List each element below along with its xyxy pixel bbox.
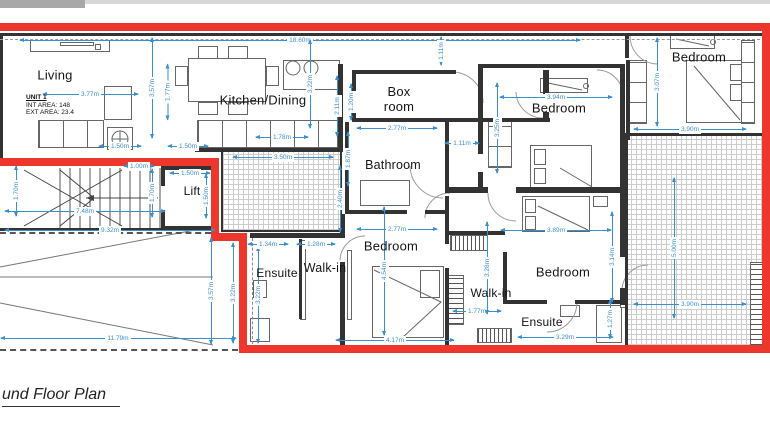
dimension-label: 1.77m [453,306,501,316]
room-label: Living [37,68,72,83]
wall [345,210,407,214]
dimension-label: 3.50m [233,152,333,162]
plan-title: und Floor Plan [2,386,120,407]
dimension-label: 3.28m [482,222,492,314]
wall [625,133,628,345]
unit-info-block: UNIT 1 INT AREA: 148 EXT AREA: 23.4 [26,94,74,117]
unit-outline-mid-horizontal [0,158,219,166]
dimension-label: 3.14m [607,212,617,302]
dimension-label: 1.77m [162,65,172,120]
wall [543,70,549,94]
dimension-label: 3.90m [634,299,746,309]
wall [445,214,449,244]
room-label: Box room [384,84,414,114]
dimension-label: 1.50m [99,141,141,151]
wall [448,231,505,235]
unit-outline-top [0,23,770,31]
unit-int-area: INT AREA: 148 [26,102,74,110]
floorplan-canvas: 18.60m1.11m3.57m1.77m3.77m1.50m1.50m3.22… [0,0,770,430]
dimension-label: 3.22m [305,40,315,128]
dimension-label: 2.11m [332,76,342,136]
dimension-label: 1.50m [168,141,208,151]
dimension-label: 3.57m [147,38,157,138]
wall [425,210,447,214]
wall [352,70,456,74]
room-label: Ensuite [256,266,297,280]
wall [478,64,625,68]
dimension-label: 4.54m [379,207,389,335]
dimension-label: 1.11m [445,138,479,148]
room-label: Ensuite [521,315,562,329]
room-label: Bedroom [672,50,726,65]
dimension-label: 3.90m [634,124,746,134]
dimension-label: 1.20m [346,84,356,120]
unit-outline-left-lower [239,233,247,353]
unit-ext-area: EXT AREA: 23.4 [26,109,74,117]
unit-outline-bottom [239,345,770,353]
dimension-label: 5.00m [669,178,679,318]
wall [516,187,625,193]
wall [299,239,302,319]
dimension-label: 9.32m [5,225,215,235]
dimension-label: 3.29m [518,332,613,342]
dimension-label: 2.77m [357,224,437,234]
room-label: Walk-in [304,261,347,275]
wall [0,33,3,158]
wall [352,118,550,122]
dimension-label: 1.78m [256,132,308,142]
dimension-label: 3.22m [228,243,238,343]
dimension-label: 3.22m [253,247,263,343]
unit-outline-right [762,23,770,353]
dimension-label: 1.50m [201,174,211,218]
room-label: Bedroom [532,101,586,116]
dimension-label: 7.48m [5,206,165,216]
dimension-label: 4.17m [336,335,454,345]
unit-name: UNIT 1 [26,94,74,102]
dimension-label: 3.89m [501,225,611,235]
site-boundary-dashed [0,349,238,351]
wall [161,166,165,186]
wall [626,60,630,140]
room-label: Lift [184,184,201,198]
dimension-label: 11.79m [1,333,236,343]
wall [505,300,547,304]
dimension-label: 3.07m [652,38,662,126]
room-label: Bedroom [364,239,418,254]
wall [445,166,449,187]
dimension-label: 2.40m [335,166,345,232]
wall [445,268,449,345]
dimension-label: 1.27m [605,300,615,338]
dimension-label: 18.60m [20,35,580,45]
dimension-label: 1.34m [248,239,288,249]
room-label: Kitchen/Dining [220,93,307,108]
dimension-label: 1.11m [436,37,446,65]
room-label: Walk-in [471,286,512,300]
room-label: Bathroom [365,158,421,172]
wall [445,187,488,193]
dimension-label: 3.57m [206,238,216,344]
wall [250,233,342,238]
dimension-label: 2.77m [357,123,437,133]
dimension-label: 1.28m [297,239,335,249]
room-label: Bedroom [536,265,590,280]
